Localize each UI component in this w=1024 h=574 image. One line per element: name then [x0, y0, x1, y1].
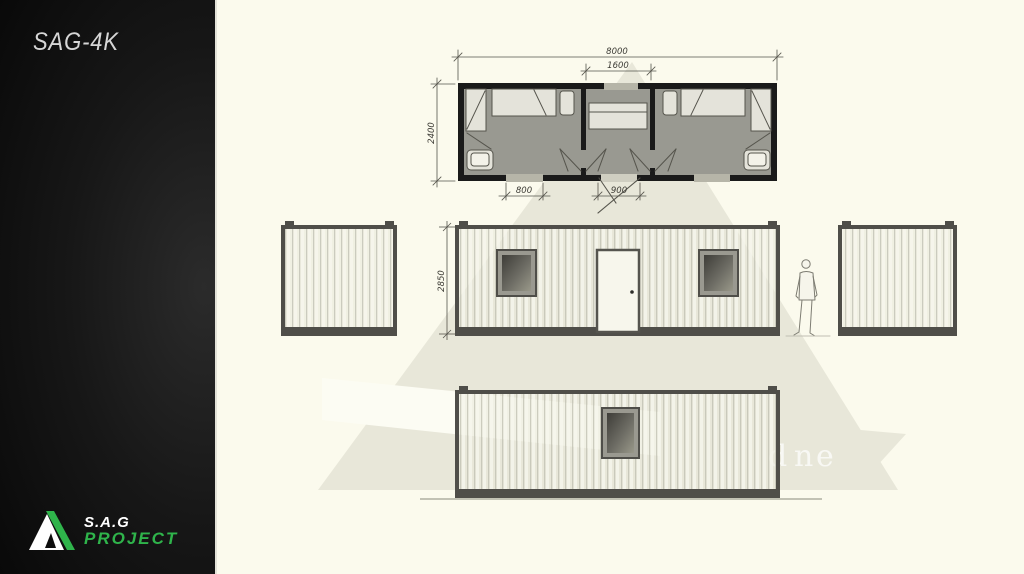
rear-window — [602, 408, 639, 458]
plan-window-right-opening — [694, 174, 730, 182]
front-window-right — [699, 250, 738, 296]
plan-partition-right — [650, 89, 655, 150]
dim-overall-width-label: 8000 — [606, 47, 628, 57]
front-window-left — [497, 250, 536, 296]
logo-name: S.A.G — [84, 515, 178, 530]
logo-subtitle: PROJECT — [84, 530, 178, 547]
left-side-view — [283, 221, 395, 334]
right-side-view — [840, 221, 955, 334]
front-elevation: 2850 — [437, 221, 778, 340]
dim-door-label: 900 — [611, 186, 627, 196]
plan-window-left-opening — [506, 174, 543, 182]
technical-drawing: dne — [217, 0, 1024, 574]
dim-depth-label: 2400 — [427, 122, 437, 144]
drawing-canvas: dne — [217, 0, 1024, 574]
plan-door-opening — [601, 174, 637, 182]
dim-height-label: 2850 — [437, 270, 447, 292]
company-logo: S.A.G PROJECT — [28, 510, 178, 552]
sidebar: SAG-4K S.A.G PROJECT — [0, 0, 217, 574]
plan-partition-left — [581, 89, 586, 150]
presentation-slide: SAG-4K S.A.G PROJECT — [0, 0, 1024, 574]
rear-elevation — [420, 386, 822, 499]
plan-partition-left-stub — [581, 168, 586, 175]
plan-partition-right-stub — [650, 168, 655, 175]
plan-hall-window-opening — [604, 83, 638, 90]
logo-text: S.A.G PROJECT — [84, 515, 178, 548]
dim-window-label: 800 — [516, 186, 532, 196]
dim-hall-width-label: 1600 — [607, 61, 629, 71]
front-door — [597, 250, 639, 332]
model-title: SAG-4K — [33, 28, 119, 57]
sag-triangle-icon — [28, 510, 76, 552]
